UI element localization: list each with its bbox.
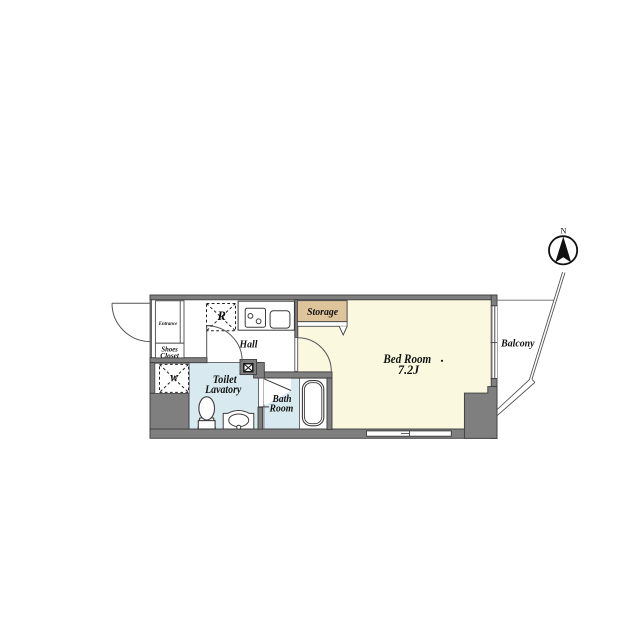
svg-text:N: N — [560, 225, 566, 235]
svg-text:Lavatory: Lavatory — [204, 384, 242, 396]
svg-text:Storage: Storage — [307, 307, 338, 318]
svg-text:Entrance: Entrance — [158, 322, 178, 327]
svg-text:W: W — [170, 375, 179, 385]
svg-text:Room: Room — [269, 402, 294, 414]
svg-text:Closet: Closet — [160, 352, 180, 360]
svg-text:7.2J: 7.2J — [398, 363, 420, 377]
svg-text:Hall: Hall — [239, 338, 259, 350]
svg-text:R: R — [216, 309, 225, 323]
svg-text:Balcony: Balcony — [500, 337, 534, 349]
